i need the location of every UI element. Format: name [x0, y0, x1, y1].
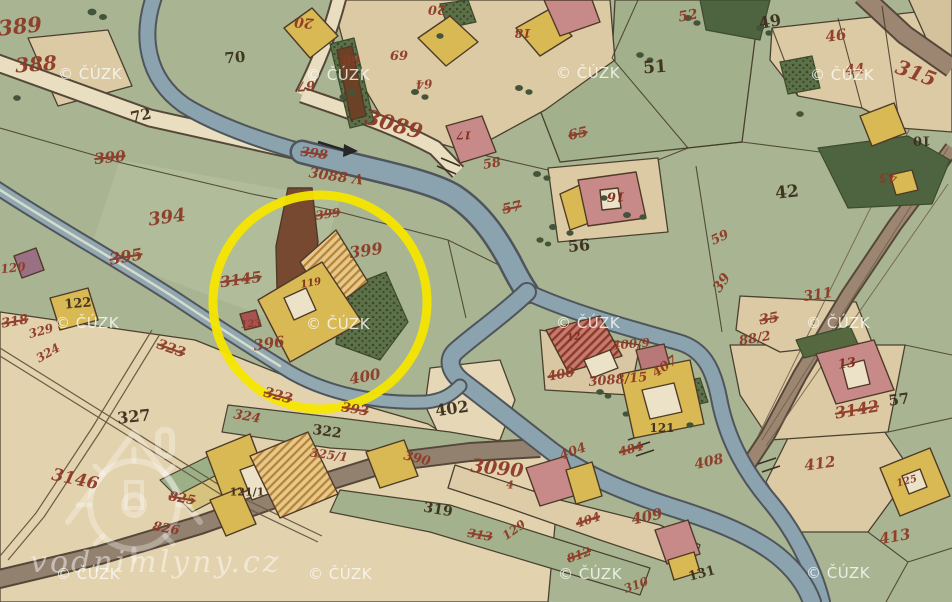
vodnimlyny-watermark-text: vodnimlyny.cz — [30, 545, 282, 580]
cadastral-map-viewer[interactable]: 3893887270202066696467185251494644315106… — [0, 0, 952, 602]
cadastral-map-image — [0, 0, 952, 602]
